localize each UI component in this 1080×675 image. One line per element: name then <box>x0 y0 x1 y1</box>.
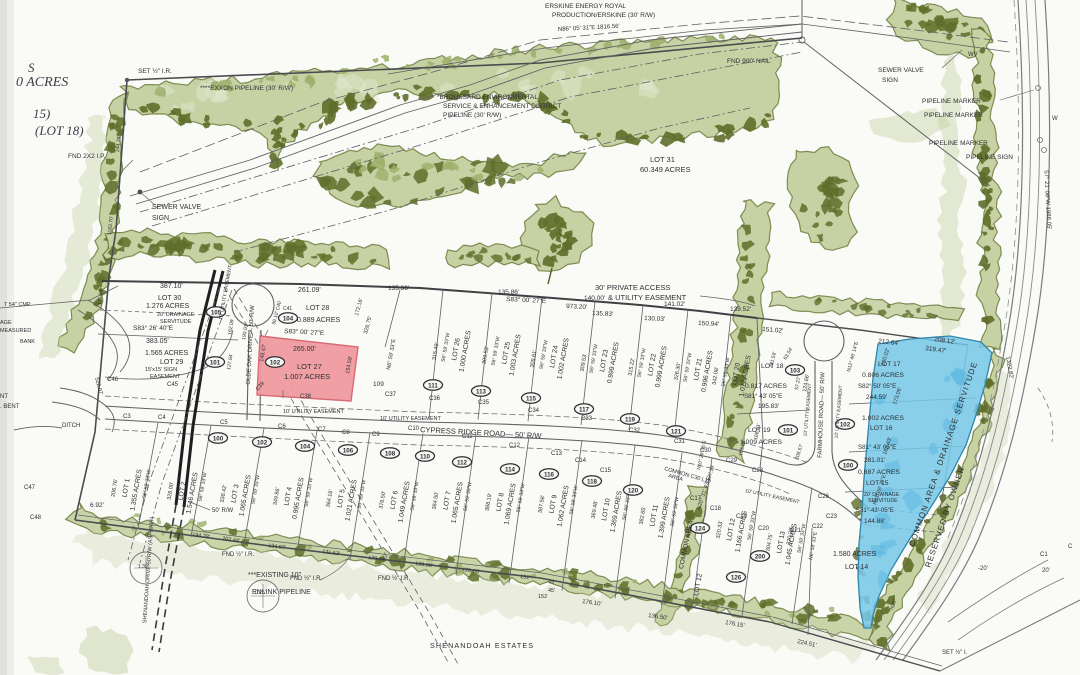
svg-text:C14: C14 <box>575 458 587 464</box>
svg-text:0.817 ACRES: 0.817 ACRES <box>745 383 787 390</box>
svg-text:115: 115 <box>526 395 537 402</box>
svg-text:FND 2X2 I.P.: FND 2X2 I.P. <box>68 153 106 160</box>
svg-text:C46: C46 <box>107 377 119 383</box>
svg-text:ERSKINE ENERGY ROYAL: ERSKINE ENERGY ROYAL <box>545 3 626 10</box>
svg-text:C29: C29 <box>726 458 738 464</box>
svg-text:261.09': 261.09' <box>298 287 321 294</box>
svg-text:1.002 ACRES: 1.002 ACRES <box>862 415 904 422</box>
svg-text:EASEMENT: EASEMENT <box>150 374 181 380</box>
svg-text:100: 100 <box>213 435 224 442</box>
svg-text:265.00': 265.00' <box>293 346 316 353</box>
svg-text:150.94': 150.94' <box>698 320 719 328</box>
svg-text:LOT 29: LOT 29 <box>160 359 183 366</box>
svg-text:C9: C9 <box>372 432 380 438</box>
svg-text:LOT 30: LOT 30 <box>158 295 181 302</box>
svg-text:C48: C48 <box>30 515 42 521</box>
svg-text:20': 20' <box>1042 568 1050 574</box>
svg-text:1.276 ACRES: 1.276 ACRES <box>146 303 190 310</box>
svg-text:C45: C45 <box>167 382 179 388</box>
svg-text:C13: C13 <box>551 451 563 457</box>
svg-text:45': 45' <box>548 588 555 594</box>
svg-text:SEWER VALVE: SEWER VALVE <box>878 67 924 74</box>
svg-text:144.88': 144.88' <box>864 518 885 525</box>
svg-text:LOT 31: LOT 31 <box>650 155 675 164</box>
svg-text:130.03': 130.03' <box>644 315 665 323</box>
svg-text:SHENANDOAH ESTATES: SHENANDOAH ESTATES <box>430 641 534 650</box>
svg-text:113: 113 <box>476 388 487 395</box>
svg-text:LOT 28: LOT 28 <box>306 305 329 312</box>
svg-text:PIPELINE SIGN: PIPELINE SIGN <box>966 154 1013 161</box>
svg-text:102: 102 <box>257 439 268 446</box>
svg-text:140.00': 140.00' <box>584 295 605 302</box>
svg-text:1.007 ACRES: 1.007 ACRES <box>284 372 330 381</box>
svg-text:SIGN: SIGN <box>152 215 169 222</box>
svg-text:101: 101 <box>210 359 221 366</box>
svg-text:C23: C23 <box>826 514 838 520</box>
svg-text:C10: C10 <box>408 426 420 432</box>
svg-text:SEWER VALVE: SEWER VALVE <box>152 204 201 211</box>
svg-text:SERVICE & ENHANCEMENT DISTRICT: SERVICE & ENHANCEMENT DISTRICT <box>443 103 561 110</box>
svg-text:C28: C28 <box>752 468 764 474</box>
svg-text:244.59': 244.59' <box>866 394 887 401</box>
svg-text:10' UTILITY EASEMENT: 10' UTILITY EASEMENT <box>380 416 441 422</box>
svg-text:104: 104 <box>283 315 294 322</box>
svg-text:SIGN: SIGN <box>882 77 898 84</box>
svg-text:200: 200 <box>755 553 766 560</box>
svg-text:C32: C32 <box>629 428 641 434</box>
svg-text:PRODUCTION/ERSKINE (30' R/W): PRODUCTION/ERSKINE (30' R/W) <box>552 12 655 19</box>
svg-text:T 54" CMP: T 54" CMP <box>4 302 31 308</box>
svg-text:1.580 ACRES: 1.580 ACRES <box>833 551 877 558</box>
svg-text:C34: C34 <box>528 408 540 414</box>
svg-text:121: 121 <box>671 428 682 435</box>
svg-text:15): 15) <box>33 106 50 121</box>
svg-text:6.92': 6.92' <box>90 502 104 509</box>
svg-text:FND 900' NAIL: FND 900' NAIL <box>727 58 771 65</box>
svg-text:C41: C41 <box>283 306 292 312</box>
svg-text:C5: C5 <box>220 420 228 426</box>
svg-text:387.10': 387.10' <box>160 283 183 290</box>
svg-text:SET ½" I.R.: SET ½" I.R. <box>138 67 172 75</box>
svg-text:-20': -20' <box>978 566 988 572</box>
svg-text:BANK: BANK <box>20 339 35 345</box>
svg-text:10' UTILITY EASEMENT: 10' UTILITY EASEMENT <box>283 409 344 415</box>
svg-text:45': 45' <box>548 579 556 586</box>
svg-text:LOT 27: LOT 27 <box>297 362 322 371</box>
svg-text:195.83': 195.83' <box>758 403 779 410</box>
svg-text:152: 152 <box>538 594 547 600</box>
svg-text:C26: C26 <box>818 494 830 500</box>
svg-text:C12: C12 <box>509 443 521 449</box>
svg-text:S: S <box>28 60 35 75</box>
svg-text:100: 100 <box>843 462 854 469</box>
svg-text:0 ACRES: 0 ACRES <box>16 75 68 90</box>
svg-text:139.52': 139.52' <box>730 306 751 313</box>
svg-text:118: 118 <box>587 478 598 485</box>
svg-text:30' PRIVATE ACCESS: 30' PRIVATE ACCESS <box>595 283 670 292</box>
svg-text:C1: C1 <box>1040 552 1048 558</box>
svg-text:. BENT: . BENT <box>0 404 20 410</box>
svg-text:111: 111 <box>428 382 438 389</box>
svg-text:S81° 43' 05"E: S81° 43' 05"E <box>744 393 782 400</box>
svg-text:FND ½" I.R.: FND ½" I.R. <box>378 575 410 582</box>
svg-text:MEASURED: MEASURED <box>0 328 31 334</box>
svg-text:20' DRAINAGE: 20' DRAINAGE <box>157 312 195 318</box>
svg-text:PIPELINE MARKER: PIPELINE MARKER <box>924 112 983 119</box>
svg-text:AGE: AGE <box>0 320 12 326</box>
svg-text:C11: C11 <box>462 434 473 440</box>
svg-text:WV: WV <box>968 52 978 58</box>
svg-text:PIPELINE (30' R/W): PIPELINE (30' R/W) <box>443 112 501 119</box>
svg-text:NT: NT <box>0 394 8 400</box>
svg-text:102: 102 <box>270 359 281 366</box>
svg-text:383.05': 383.05' <box>146 338 169 345</box>
svg-text:101: 101 <box>783 427 794 434</box>
svg-text:1.30': 1.30' <box>138 564 149 570</box>
svg-text:117: 117 <box>579 406 590 413</box>
svg-text:C37: C37 <box>385 392 397 398</box>
svg-text:C35: C35 <box>478 400 490 406</box>
svg-text:116: 116 <box>544 471 555 478</box>
svg-text:104: 104 <box>300 443 311 450</box>
svg-text:108: 108 <box>385 450 396 457</box>
svg-text:C4: C4 <box>158 415 166 421</box>
svg-text:(LOT 18): (LOT 18) <box>35 123 84 138</box>
svg-text:C8: C8 <box>342 430 350 436</box>
svg-text:119: 119 <box>625 416 636 423</box>
svg-text:281.01': 281.01' <box>864 457 885 464</box>
svg-text:102: 102 <box>840 421 851 428</box>
svg-text:PIPELINE MARKER: PIPELINE MARKER <box>922 98 981 105</box>
svg-text:S81°-43'-05"E: S81°-43'-05"E <box>856 508 894 514</box>
svg-text:C6: C6 <box>278 424 286 430</box>
svg-text:135.86': 135.86' <box>498 289 519 296</box>
svg-text:S82° 50' 05"E: S82° 50' 05"E <box>858 383 896 390</box>
svg-text:135.86': 135.86' <box>388 285 409 292</box>
svg-text:DITCH: DITCH <box>62 423 80 429</box>
svg-text:C38: C38 <box>300 394 312 400</box>
svg-text:50' R/W: 50' R/W <box>212 508 233 514</box>
svg-text:60.349 ACRES: 60.349 ACRES <box>640 165 690 174</box>
svg-text:135.83': 135.83' <box>592 310 613 318</box>
svg-text:LOT 14: LOT 14 <box>845 564 868 571</box>
svg-text:W: W <box>1052 116 1058 122</box>
svg-text:C47: C47 <box>24 485 36 491</box>
svg-text:106: 106 <box>343 447 354 454</box>
svg-text:****EXXON PIPELINE (30' R/W): ****EXXON PIPELINE (30' R/W) <box>200 85 293 92</box>
svg-text:LOT 16: LOT 16 <box>870 425 893 432</box>
svg-text:141.02': 141.02' <box>664 301 685 308</box>
svg-text:C3: C3 <box>123 414 131 420</box>
svg-text:1.565 ACRES: 1.565 ACRES <box>145 350 189 357</box>
svg-text:C15: C15 <box>600 468 612 474</box>
svg-text:C31: C31 <box>674 439 686 445</box>
svg-text:FND ½" I.R.: FND ½" I.R. <box>290 575 322 582</box>
svg-text:110: 110 <box>420 453 431 460</box>
svg-text:15'x15' SIGN: 15'x15' SIGN <box>145 367 177 373</box>
svg-text:103: 103 <box>790 367 801 374</box>
svg-text:C20: C20 <box>758 526 770 532</box>
svg-text:112: 112 <box>457 459 468 466</box>
svg-text:FND ½" I.R.: FND ½" I.R. <box>222 551 254 558</box>
svg-text:C: C <box>1068 544 1073 550</box>
svg-text:124: 124 <box>695 525 706 532</box>
svg-text:114: 114 <box>505 466 516 473</box>
svg-text:PIPELINE MARKER: PIPELINE MARKER <box>929 140 988 147</box>
svg-text:0.887 ACRES: 0.887 ACRES <box>858 469 900 476</box>
svg-text:C22: C22 <box>812 524 824 530</box>
svg-text:0.806 ACRES: 0.806 ACRES <box>862 372 904 379</box>
svg-text:SET ½" I.: SET ½" I. <box>942 649 968 656</box>
svg-text:S83° 26' 40"E: S83° 26' 40"E <box>133 324 174 332</box>
svg-text:126: 126 <box>731 574 742 581</box>
svg-text:C7: C7 <box>318 427 326 433</box>
svg-text:C18: C18 <box>710 506 722 512</box>
svg-text:C36: C36 <box>429 396 441 402</box>
svg-text:109: 109 <box>373 381 384 388</box>
svg-text:ENLINK PIPELINE: ENLINK PIPELINE <box>252 589 311 596</box>
svg-text:C33: C33 <box>581 416 593 422</box>
svg-text:*BROUSSARD ENVIRONMENTAL: *BROUSSARD ENVIRONMENTAL <box>437 94 538 101</box>
svg-text:120: 120 <box>628 487 639 494</box>
svg-text:973.20': 973.20' <box>566 303 587 311</box>
svg-text:0.889 ACRES: 0.889 ACRES <box>297 317 341 324</box>
svg-text:C19: C19 <box>736 514 748 520</box>
